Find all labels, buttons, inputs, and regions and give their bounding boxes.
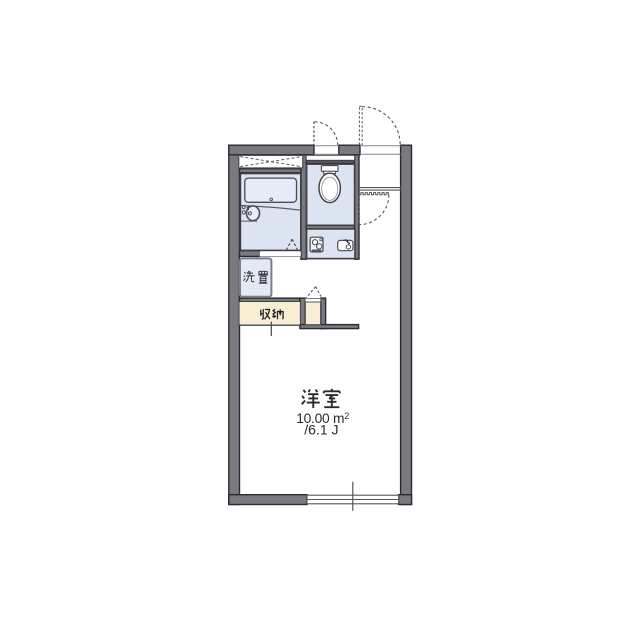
svg-text:/6.1 J: /6.1 J: [304, 421, 338, 437]
